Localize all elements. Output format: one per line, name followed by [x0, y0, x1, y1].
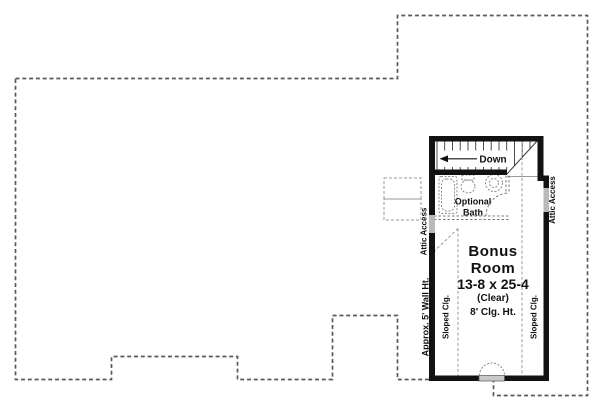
roof-outline-dashed — [16, 16, 588, 396]
stair-right-wall — [538, 136, 544, 181]
floor-plan-canvas: Down Optional Bath Bonu — [0, 0, 600, 408]
wall-height-label: Approx. 5' Wall Ht. — [420, 278, 430, 357]
room-name-line1: Bonus — [468, 243, 517, 260]
room-clear-note: (Clear) — [477, 293, 509, 304]
stair-top-wall — [429, 136, 544, 142]
room-ceiling-note: 8' Clg. Ht. — [470, 307, 516, 318]
room-dimensions: 13-8 x 25-4 — [457, 276, 529, 292]
arched-window — [479, 363, 505, 381]
floor-plan: Down Optional Bath Bonu — [0, 0, 600, 408]
window-sill — [479, 376, 505, 382]
optional-bath: Optional Bath — [434, 175, 509, 220]
sink-backsplash — [462, 175, 474, 180]
optional-bath-label-line2: Bath — [463, 208, 483, 218]
optional-bath-label-line1: Optional — [455, 197, 492, 207]
sloped-clg-label-left: Sloped Clg. — [442, 295, 451, 339]
shower-fixture-inner — [442, 179, 455, 211]
toilet-fixture — [486, 175, 503, 192]
toilet-fixture-inner — [490, 179, 499, 188]
attic-access-opening-left — [429, 215, 435, 233]
window-arch-arc — [480, 363, 505, 376]
mechanical-boxes — [384, 178, 421, 220]
bonus-room-labels: Bonus Room 13-8 x 25-4 (Clear) 8' Clg. H… — [457, 243, 529, 318]
sloped-clg-label-right: Sloped Clg. — [530, 295, 539, 339]
stair-bottom-wall — [429, 170, 507, 176]
room-name-line2: Room — [471, 260, 516, 277]
stair-down-label: Down — [479, 155, 506, 166]
mechanical-box-top — [384, 178, 421, 199]
mechanical-box-bottom — [384, 199, 421, 220]
sink-fixture — [461, 180, 475, 193]
attic-access-label-left: Attic Access — [420, 207, 429, 255]
attic-hatch-diagonal — [434, 229, 459, 253]
attic-access-label-right: Attic Access — [548, 176, 557, 224]
